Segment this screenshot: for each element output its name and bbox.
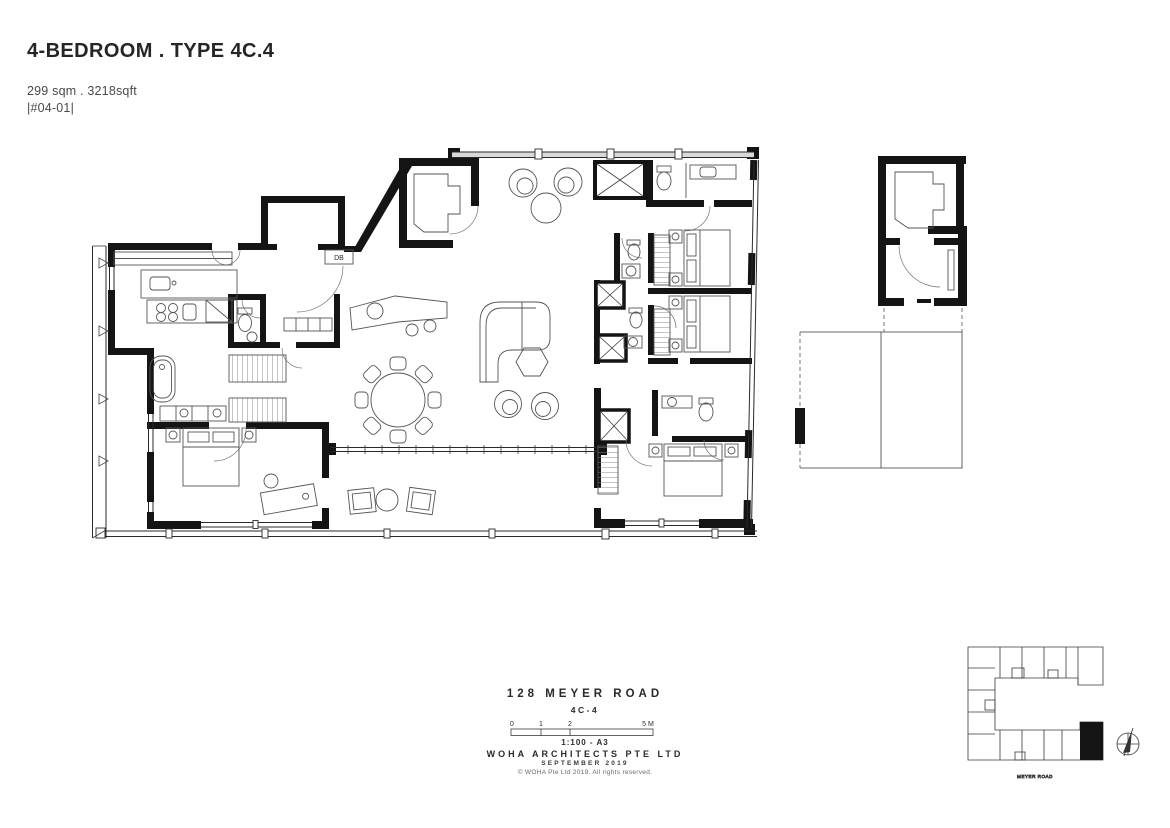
scale-tick-0: 0: [510, 721, 514, 728]
louvre-band: [93, 246, 109, 538]
floor-plan-drawing: DB 0 1 2 5: [0, 0, 1170, 828]
sofa: [480, 302, 550, 382]
scale-tick-2: 2: [568, 721, 572, 728]
copyright-note: © WOHA Pte Ltd 2019. All rights reserved…: [435, 769, 735, 776]
lounge-chairs-top: [509, 168, 582, 223]
db-box: DB: [325, 250, 353, 264]
annex-lift-car: [895, 172, 944, 228]
console-piano: [350, 296, 447, 336]
balcony-furniture: [348, 487, 436, 514]
master-bathroom: [150, 356, 226, 421]
drawing-sheet: 4-BEDROOM . TYPE 4C.4 299 sqm . 3218sqft…: [0, 0, 1170, 828]
annex: [795, 156, 967, 468]
unit-type-label: 4C-4: [435, 705, 735, 715]
key-plan: MEYER ROAD: [968, 647, 1103, 779]
side-table-hex: [516, 348, 548, 376]
scale-bar: 0 1 2 5 M: [510, 721, 654, 736]
bathroom-top: [657, 163, 736, 198]
bathroom-bottom: [662, 396, 713, 421]
powder-room: [238, 308, 332, 342]
scale-tick-1: 1: [539, 721, 543, 728]
architect-name: WOHA ARCHITECTS PTE LTD: [435, 749, 735, 759]
scale-tick-5m: 5 M: [642, 721, 654, 728]
scale-note: 1:100 - A3: [435, 738, 735, 747]
bedroom4-bed: [649, 444, 738, 496]
master-desk: [260, 484, 317, 515]
service-shafts: [595, 162, 645, 442]
wardrobes: [229, 235, 670, 494]
key-plan-unit-highlight: [1080, 722, 1103, 760]
balcony-edge: [96, 528, 757, 539]
desk-stool: [264, 474, 278, 488]
lounge-chairs-bottom: [495, 391, 559, 420]
private-lift-car: [414, 174, 460, 232]
issue-date: SEPTEMBER 2019: [435, 760, 735, 767]
bedroom2-bed: [669, 230, 730, 286]
north-arrow-icon: [1117, 728, 1139, 756]
bedroom3-bed: [669, 296, 730, 352]
dining-table: [355, 357, 441, 443]
db-label: DB: [334, 255, 344, 262]
project-name: 128 MEYER ROAD: [435, 688, 735, 700]
key-plan-road-label: MEYER ROAD: [1017, 774, 1053, 779]
master-bed: [166, 428, 256, 486]
